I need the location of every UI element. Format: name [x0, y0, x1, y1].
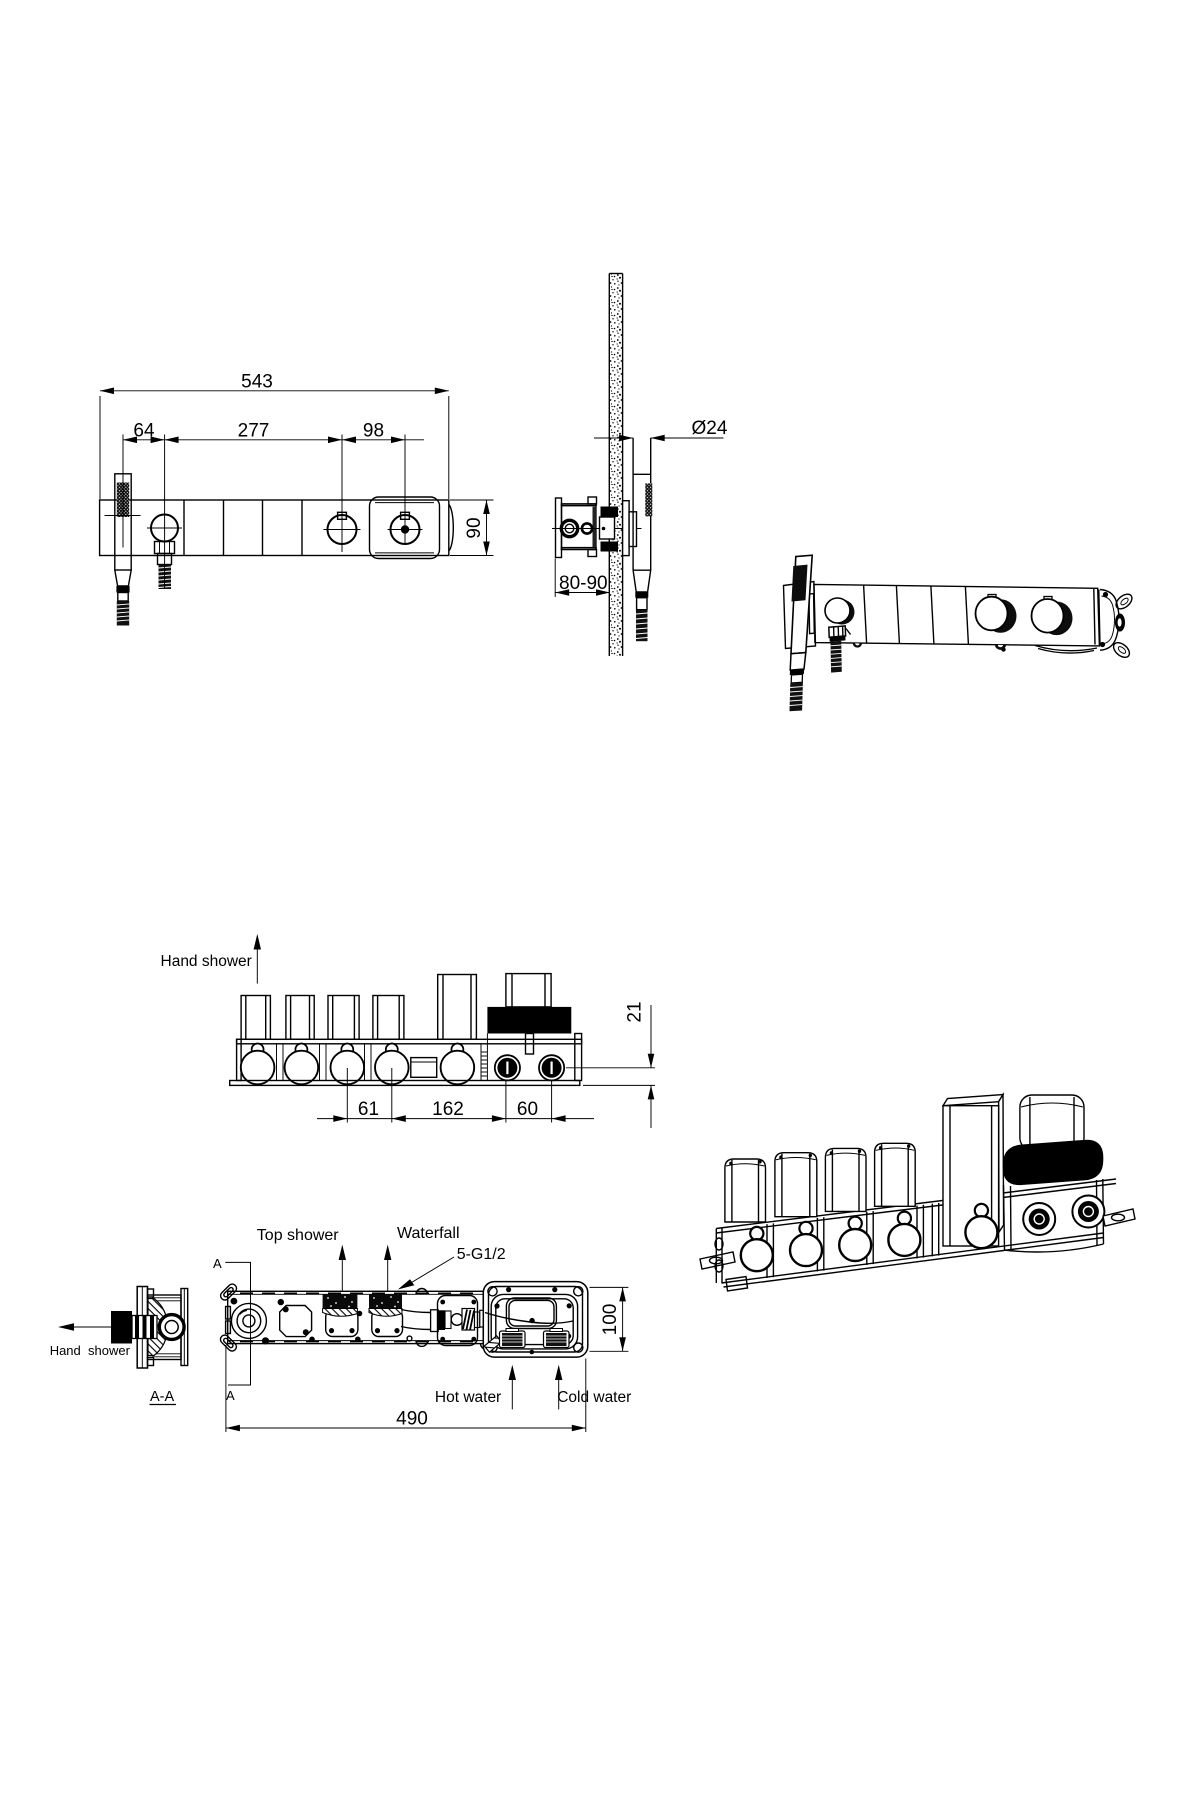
svg-text:100: 100 — [600, 1304, 621, 1336]
svg-text:A-A: A-A — [150, 1389, 175, 1405]
svg-text:Hand shower: Hand shower — [161, 953, 252, 970]
svg-text:61: 61 — [358, 1099, 379, 1120]
svg-text:277: 277 — [238, 421, 270, 442]
svg-text:A: A — [213, 1256, 222, 1271]
svg-text:Ø24: Ø24 — [692, 418, 728, 439]
svg-text:90: 90 — [464, 517, 485, 538]
svg-text:80-90: 80-90 — [559, 573, 608, 594]
svg-text:490: 490 — [396, 1409, 428, 1430]
svg-text:543: 543 — [241, 372, 273, 393]
svg-text:Hand shower: Hand shower — [50, 1343, 131, 1358]
svg-text:64: 64 — [133, 421, 155, 442]
svg-text:Top shower: Top shower — [257, 1227, 339, 1244]
svg-text:Waterfall: Waterfall — [397, 1225, 460, 1242]
svg-text:Hot water: Hot water — [435, 1389, 501, 1406]
svg-text:60: 60 — [517, 1099, 538, 1120]
svg-text:162: 162 — [432, 1099, 464, 1120]
svg-text:21: 21 — [625, 1001, 646, 1022]
svg-text:A: A — [226, 1388, 235, 1403]
svg-text:5-G1/2: 5-G1/2 — [457, 1246, 506, 1263]
svg-text:Cold water: Cold water — [557, 1389, 631, 1406]
svg-text:98: 98 — [363, 421, 384, 442]
